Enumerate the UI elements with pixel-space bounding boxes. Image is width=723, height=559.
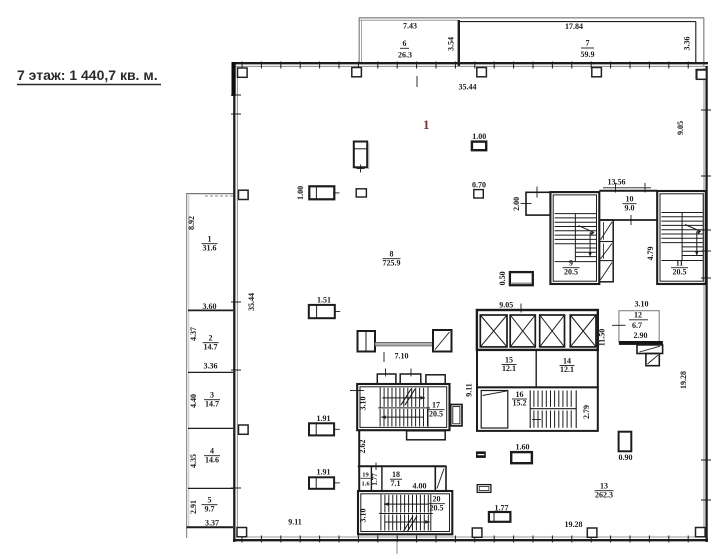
svg-text:20: 20	[433, 495, 441, 504]
svg-text:13.56: 13.56	[608, 178, 626, 187]
svg-text:17.84: 17.84	[565, 22, 583, 31]
svg-text:1.77: 1.77	[371, 473, 379, 486]
svg-text:2.90: 2.90	[634, 331, 648, 340]
svg-text:2.00: 2.00	[512, 197, 521, 211]
svg-text:1: 1	[423, 118, 429, 132]
svg-text:4.79: 4.79	[646, 247, 655, 261]
svg-text:3.37: 3.37	[205, 519, 219, 528]
svg-text:16: 16	[516, 390, 524, 399]
svg-text:20.5: 20.5	[564, 267, 578, 276]
svg-text:7.43: 7.43	[403, 22, 417, 31]
svg-text:11.50: 11.50	[598, 329, 607, 347]
svg-text:7: 7	[586, 39, 590, 48]
svg-text:9.7: 9.7	[205, 504, 215, 513]
svg-text:7 этаж: 1 440,7 кв. м.: 7 этаж: 1 440,7 кв. м.	[17, 67, 158, 83]
svg-text:17: 17	[432, 401, 440, 410]
svg-text:1: 1	[208, 235, 212, 244]
svg-text:7.10: 7.10	[395, 351, 409, 360]
svg-text:0.90: 0.90	[619, 453, 633, 462]
svg-text:262.3: 262.3	[595, 490, 613, 499]
svg-text:1.00: 1.00	[296, 186, 305, 200]
svg-text:12.1: 12.1	[560, 365, 574, 374]
svg-text:6: 6	[403, 39, 407, 48]
svg-text:4.35: 4.35	[189, 454, 198, 468]
svg-text:1.60: 1.60	[516, 442, 530, 451]
svg-text:9.05: 9.05	[499, 300, 513, 309]
svg-text:4.37: 4.37	[189, 327, 198, 341]
svg-text:19.28: 19.28	[679, 371, 688, 389]
svg-text:13: 13	[600, 482, 608, 491]
svg-text:35.44: 35.44	[459, 83, 477, 92]
svg-text:5: 5	[208, 496, 212, 505]
svg-text:26.3: 26.3	[398, 51, 412, 60]
svg-text:9.05: 9.05	[676, 121, 685, 135]
svg-text:1.00: 1.00	[472, 132, 486, 141]
svg-text:3.36: 3.36	[683, 37, 692, 51]
svg-text:20.5: 20.5	[673, 267, 687, 276]
svg-text:11: 11	[676, 259, 684, 268]
svg-text:20.5: 20.5	[429, 409, 443, 418]
svg-text:14.7: 14.7	[205, 399, 219, 408]
svg-text:3.54: 3.54	[446, 37, 455, 51]
svg-text:19: 19	[362, 472, 369, 479]
svg-text:9.11: 9.11	[288, 518, 302, 527]
svg-text:14.6: 14.6	[205, 455, 219, 464]
svg-text:18: 18	[392, 470, 400, 479]
svg-text:1.6: 1.6	[361, 481, 370, 488]
svg-text:15: 15	[505, 355, 513, 364]
svg-text:35.44: 35.44	[247, 293, 256, 311]
svg-text:10: 10	[626, 195, 634, 204]
svg-text:3.36: 3.36	[204, 362, 218, 371]
svg-text:3.10: 3.10	[359, 397, 368, 411]
svg-text:0.70: 0.70	[472, 181, 486, 190]
svg-text:725.9: 725.9	[383, 258, 401, 267]
svg-text:9.11: 9.11	[464, 383, 473, 397]
svg-text:4: 4	[210, 447, 214, 456]
svg-text:1.91: 1.91	[317, 468, 331, 477]
svg-text:2.91: 2.91	[189, 500, 198, 514]
svg-text:14.7: 14.7	[204, 342, 218, 351]
svg-text:15.2: 15.2	[513, 399, 527, 408]
svg-text:0.50: 0.50	[498, 271, 507, 285]
svg-text:8: 8	[390, 250, 394, 259]
svg-text:1.91: 1.91	[317, 414, 331, 423]
svg-text:2.79: 2.79	[582, 405, 591, 419]
svg-text:2: 2	[209, 334, 213, 343]
svg-text:1.51: 1.51	[317, 295, 331, 304]
svg-text:9: 9	[569, 259, 573, 268]
svg-text:6.7: 6.7	[632, 321, 642, 330]
svg-text:31.6: 31.6	[203, 243, 217, 252]
svg-text:59.9: 59.9	[581, 50, 595, 59]
svg-text:19.28: 19.28	[565, 520, 583, 529]
svg-text:7.1: 7.1	[391, 479, 401, 488]
svg-text:8.92: 8.92	[187, 216, 196, 230]
svg-text:14: 14	[563, 356, 571, 365]
svg-text:3.10: 3.10	[635, 300, 649, 309]
svg-text:4.40: 4.40	[189, 394, 198, 408]
svg-text:12.1: 12.1	[502, 364, 516, 373]
svg-text:4.00: 4.00	[413, 482, 427, 491]
svg-text:3.10: 3.10	[359, 509, 368, 523]
svg-text:9.0: 9.0	[625, 203, 635, 212]
svg-text:12: 12	[634, 311, 642, 320]
svg-text:3: 3	[210, 391, 214, 400]
svg-text:20.5: 20.5	[430, 503, 444, 512]
